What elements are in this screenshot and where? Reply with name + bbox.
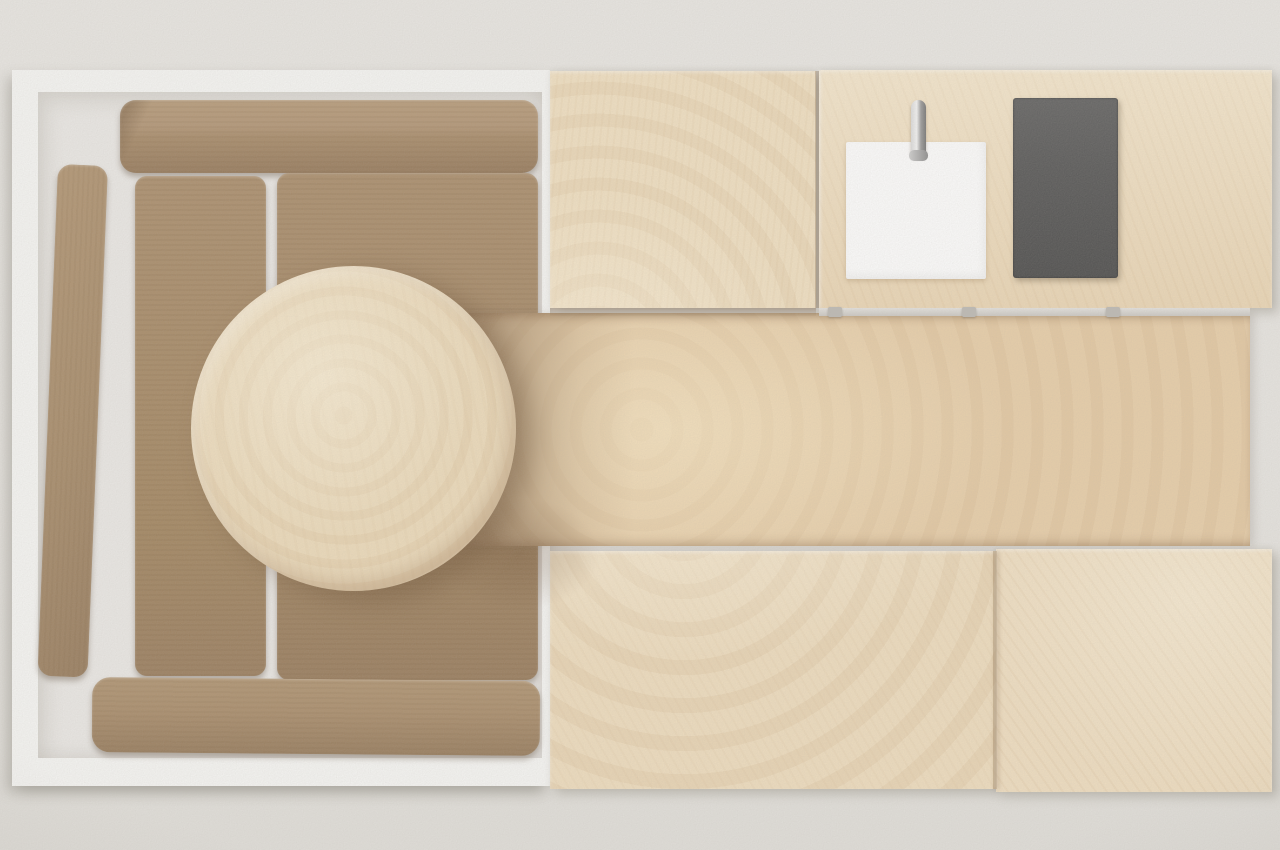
counter-bottom-right [996,549,1272,792]
kitchen-floor-aisle [460,313,1250,546]
cabinet-hinge [1106,307,1120,317]
cabinet-hinge [828,307,842,317]
counter-top-left [550,71,816,308]
faucet [911,100,926,157]
counter-seam-top [815,71,819,308]
sofa-backrest-bottom-cushion [92,677,541,756]
counter-edge-shadow [550,308,816,316]
kitchen-sink [846,142,986,279]
round-coffee-table [191,266,516,591]
faucet-base [909,150,928,161]
cabinet-front-edge [819,308,1250,316]
cooktop [1013,98,1118,278]
sofa-backrest-top-cushion [120,100,538,173]
counter-seam-bottom [993,551,997,789]
cabinet-hinge [962,307,976,317]
room-top-view [0,0,1280,850]
counter-bottom-left [550,551,996,789]
